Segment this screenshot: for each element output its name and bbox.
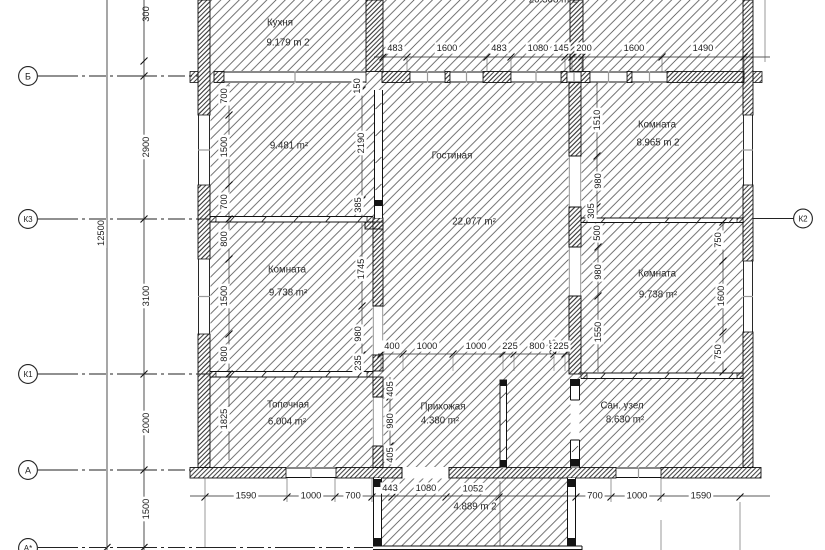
svg-text:1500: 1500: [219, 286, 229, 307]
svg-text:800: 800: [219, 346, 229, 362]
svg-text:980: 980: [593, 173, 603, 189]
svg-text:1000: 1000: [301, 491, 322, 501]
svg-text:12500: 12500: [96, 220, 106, 246]
svg-text:400: 400: [384, 341, 400, 351]
svg-text:405: 405: [385, 447, 395, 463]
svg-text:9.481 m²: 9.481 m²: [270, 141, 309, 152]
svg-text:1590: 1590: [691, 491, 712, 501]
svg-text:Прихожая: Прихожая: [421, 402, 466, 413]
svg-text:150: 150: [352, 78, 362, 94]
svg-text:1825: 1825: [219, 409, 229, 430]
svg-text:305: 305: [586, 203, 596, 219]
svg-text:700: 700: [345, 491, 361, 501]
svg-text:750: 750: [713, 232, 723, 248]
svg-text:Кухня: Кухня: [267, 18, 293, 29]
svg-text:443: 443: [382, 483, 398, 493]
svg-text:Комната: Комната: [638, 120, 677, 131]
svg-text:300: 300: [141, 6, 151, 22]
svg-text:8.630 m²: 8.630 m²: [606, 415, 645, 426]
svg-text:1000: 1000: [417, 341, 438, 351]
svg-text:483: 483: [491, 43, 507, 53]
svg-text:405: 405: [385, 381, 395, 397]
svg-text:980: 980: [385, 413, 395, 429]
svg-text:1000: 1000: [466, 341, 487, 351]
svg-text:1600: 1600: [437, 43, 458, 53]
svg-text:4.889 m 2: 4.889 m 2: [453, 502, 496, 513]
svg-text:1550: 1550: [593, 322, 603, 343]
svg-text:1600: 1600: [624, 43, 645, 53]
svg-text:20.508 m 2: 20.508 m 2: [529, 0, 577, 6]
svg-text:22.077 m²: 22.077 m²: [452, 217, 496, 228]
svg-text:Сан. узел: Сан. узел: [600, 401, 643, 412]
svg-text:Комната: Комната: [268, 265, 307, 276]
svg-text:К1: К1: [23, 370, 33, 379]
svg-text:700: 700: [587, 491, 603, 501]
svg-text:А*: А*: [24, 544, 32, 550]
svg-text:700: 700: [219, 194, 229, 210]
svg-text:1080: 1080: [416, 483, 437, 493]
svg-text:2190: 2190: [356, 133, 366, 154]
svg-text:1600: 1600: [716, 286, 726, 307]
svg-text:9.738 m²: 9.738 m²: [639, 290, 678, 301]
svg-text:Комната: Комната: [638, 269, 677, 280]
svg-text:9.738 m²: 9.738 m²: [269, 288, 308, 299]
svg-text:4.380 m²: 4.380 m²: [421, 416, 460, 427]
svg-text:9.179 m 2: 9.179 m 2: [266, 38, 309, 49]
svg-text:1500: 1500: [141, 499, 151, 520]
svg-text:800: 800: [529, 341, 545, 351]
svg-text:3100: 3100: [141, 286, 151, 307]
svg-text:1052: 1052: [463, 484, 484, 494]
svg-text:К2: К2: [798, 215, 808, 224]
svg-text:8.965 m 2: 8.965 m 2: [636, 138, 679, 149]
svg-text:225: 225: [502, 341, 518, 351]
svg-text:200: 200: [576, 43, 592, 53]
svg-text:700: 700: [219, 88, 229, 104]
svg-text:6.004 m²: 6.004 m²: [268, 417, 307, 428]
svg-text:235: 235: [353, 355, 363, 371]
svg-text:1000: 1000: [627, 491, 648, 501]
svg-text:1500: 1500: [219, 137, 229, 158]
svg-text:1490: 1490: [693, 43, 714, 53]
svg-text:500: 500: [592, 225, 602, 241]
svg-text:2900: 2900: [141, 137, 151, 158]
svg-text:Гостиная: Гостиная: [432, 151, 473, 162]
svg-text:2000: 2000: [141, 413, 151, 434]
svg-text:1080: 1080: [528, 43, 549, 53]
svg-text:Б: Б: [25, 72, 31, 82]
svg-text:225: 225: [553, 341, 569, 351]
svg-text:1590: 1590: [236, 491, 257, 501]
svg-text:Топочная: Топочная: [267, 400, 309, 411]
svg-text:980: 980: [593, 264, 603, 280]
svg-text:А: А: [25, 466, 31, 476]
svg-text:145: 145: [553, 43, 569, 53]
svg-text:980: 980: [353, 326, 363, 342]
svg-text:1510: 1510: [592, 110, 602, 131]
svg-text:750: 750: [713, 344, 723, 360]
svg-text:К3: К3: [23, 215, 33, 224]
svg-text:800: 800: [219, 231, 229, 247]
svg-text:1745: 1745: [356, 259, 366, 280]
svg-text:385: 385: [353, 197, 363, 213]
svg-text:483: 483: [387, 43, 403, 53]
